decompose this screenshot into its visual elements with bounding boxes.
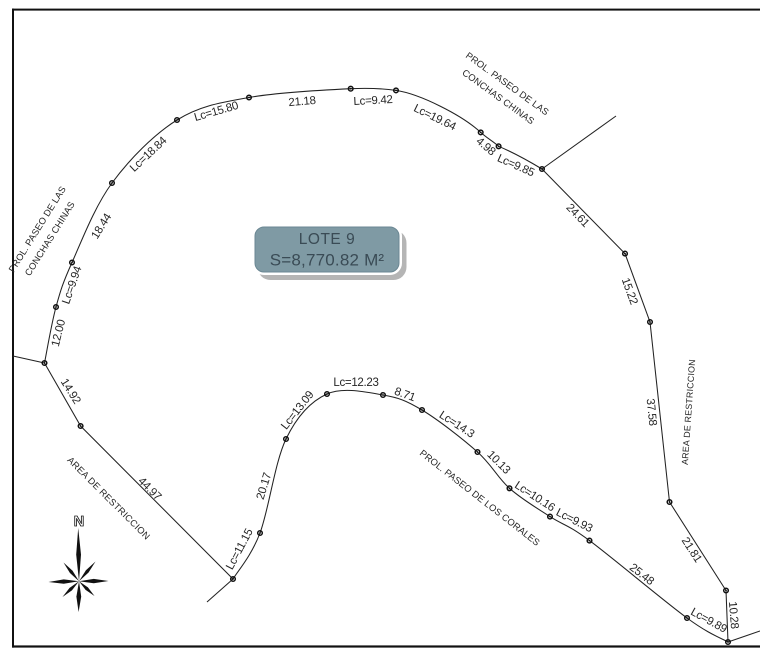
svg-text:LOTE 9: LOTE 9 (299, 231, 355, 248)
svg-text:10.13: 10.13 (484, 449, 512, 477)
svg-text:Lc=10.16: Lc=10.16 (512, 479, 556, 514)
svg-text:PROL. PASEO DE LOS CORALES: PROL. PASEO DE LOS CORALES (418, 447, 542, 548)
svg-text:Lc=12.23: Lc=12.23 (333, 377, 378, 389)
svg-text:24.61: 24.61 (563, 202, 591, 230)
svg-text:Lc=9.42: Lc=9.42 (353, 94, 393, 108)
svg-text:20.17: 20.17 (255, 471, 274, 501)
svg-text:Lc=18.84: Lc=18.84 (128, 134, 170, 174)
svg-text:21.18: 21.18 (288, 95, 316, 109)
svg-text:10.28: 10.28 (726, 601, 740, 629)
svg-text:44.97: 44.97 (135, 475, 163, 503)
svg-text:4.98: 4.98 (473, 135, 497, 158)
svg-text:Lc=9.85: Lc=9.85 (495, 152, 536, 179)
svg-text:Lc=14.3: Lc=14.3 (437, 409, 476, 440)
svg-text:25.48: 25.48 (627, 562, 656, 588)
svg-text:37.58: 37.58 (644, 398, 659, 426)
svg-text:AREA DE RESTRICCION: AREA DE RESTRICCION (680, 359, 697, 465)
svg-text:14.92: 14.92 (58, 377, 83, 406)
svg-text:Lc=9.93: Lc=9.93 (554, 507, 594, 535)
svg-text:Lc=9.94: Lc=9.94 (60, 264, 84, 306)
svg-text:Lc=19.64: Lc=19.64 (412, 103, 459, 134)
svg-text:15.22: 15.22 (619, 276, 640, 306)
svg-text:Lc=11.15: Lc=11.15 (224, 527, 255, 572)
svg-text:S=8,770.82 M²: S=8,770.82 M² (270, 251, 385, 270)
svg-text:Lc=13.09: Lc=13.09 (279, 389, 316, 432)
svg-text:8.71: 8.71 (393, 386, 417, 405)
svg-text:N: N (74, 514, 84, 530)
svg-text:Lc=9.89: Lc=9.89 (688, 606, 728, 635)
